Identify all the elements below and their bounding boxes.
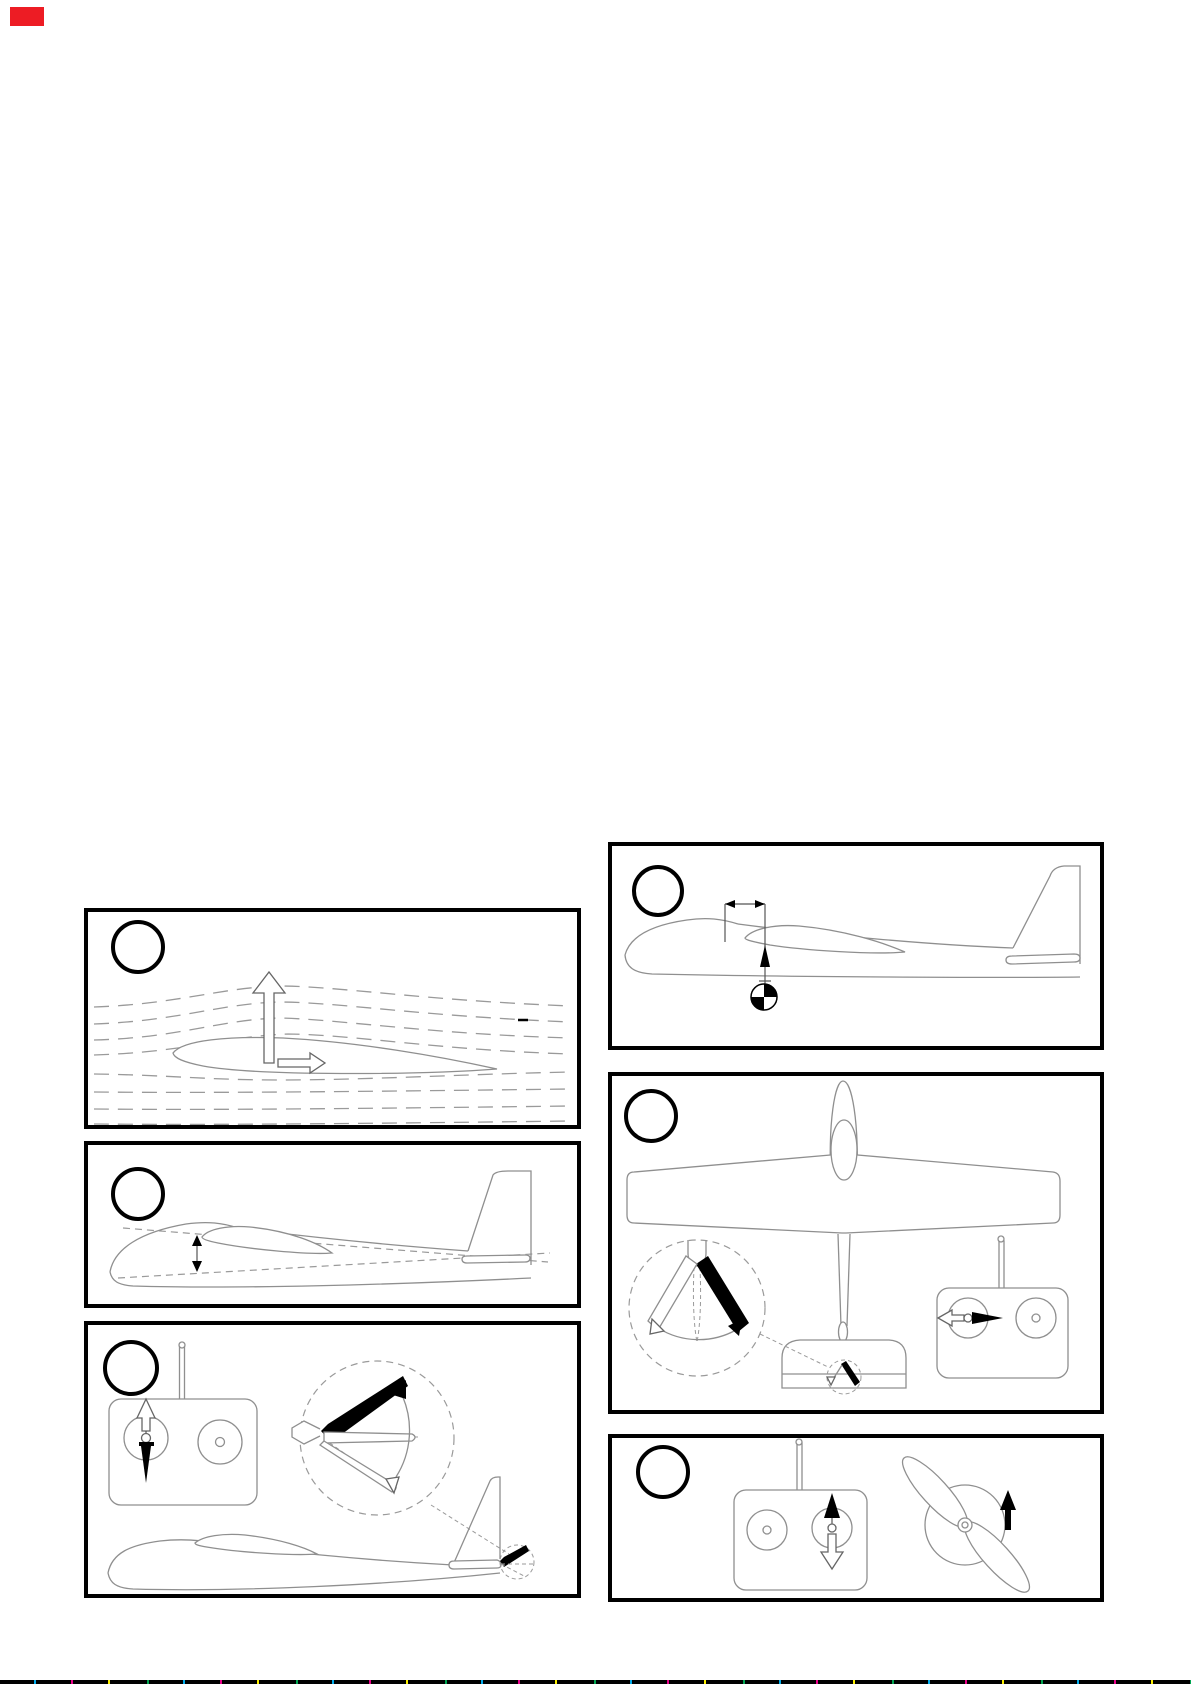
transmitter xyxy=(937,1236,1068,1378)
stick-pivot xyxy=(828,1524,836,1532)
rudder-control-drawing xyxy=(612,1076,1100,1410)
detail-connector xyxy=(431,1505,509,1554)
antenna-tip xyxy=(998,1236,1004,1242)
airfoil-section xyxy=(173,1038,497,1074)
antenna xyxy=(999,1241,1004,1291)
rudder-detail-circle xyxy=(629,1240,765,1376)
glider-side-view xyxy=(110,1171,531,1287)
glider-side-view xyxy=(625,866,1080,977)
transmitter xyxy=(109,1342,257,1505)
cg-symbol xyxy=(751,984,777,1010)
panel-incidence xyxy=(84,1141,581,1308)
rotation-arrow xyxy=(1000,1490,1016,1510)
panel-throttle xyxy=(608,1434,1104,1602)
panel-c-badge-circle xyxy=(105,1342,157,1394)
bottom-print-rule xyxy=(0,1680,1191,1684)
throttle-drawing xyxy=(612,1438,1100,1598)
propeller xyxy=(894,1449,1037,1598)
panel-rudder-control xyxy=(608,1072,1104,1414)
panel-d-badge-circle xyxy=(634,867,682,915)
panel-b-badge-circle xyxy=(113,1169,163,1219)
panel-elevator-control xyxy=(84,1321,581,1598)
elevator-control-drawing xyxy=(88,1325,577,1594)
prop-hub xyxy=(958,1518,972,1532)
antenna-tip xyxy=(796,1439,802,1445)
rudder-left-outline xyxy=(648,1256,697,1330)
panel-e-badge-circle xyxy=(626,1091,676,1141)
transmitter-body xyxy=(734,1490,867,1590)
transmitter-body xyxy=(109,1399,257,1505)
antenna xyxy=(797,1443,802,1492)
transmitter xyxy=(734,1439,867,1590)
manual-page: { "page": { "width_px": 1191, "height_px… xyxy=(0,0,1191,1685)
panel-a-badge-circle xyxy=(113,922,163,972)
stick-pivot xyxy=(142,1434,151,1443)
elevator-neutral-outline xyxy=(324,1432,415,1443)
elevator-detail-circle xyxy=(292,1361,454,1515)
cg-drawing xyxy=(612,846,1100,1046)
antenna-tip xyxy=(179,1342,185,1348)
incidence-arrow xyxy=(192,1235,202,1272)
tailpost xyxy=(292,1421,320,1444)
panel-airflow-lift xyxy=(84,908,581,1129)
panel-f-badge-circle xyxy=(638,1447,688,1497)
cg-pointer xyxy=(759,945,771,984)
red-corner-mark xyxy=(10,7,44,26)
incidence-drawing xyxy=(88,1145,577,1304)
panel-center-of-gravity xyxy=(608,842,1104,1050)
airflow-lift-drawing xyxy=(88,912,577,1125)
antenna xyxy=(180,1347,185,1407)
cockpit xyxy=(831,1120,857,1180)
stick-pivot xyxy=(964,1314,972,1322)
cg-arrow-up xyxy=(760,945,770,967)
reference-lines xyxy=(118,1228,550,1278)
boom-end xyxy=(839,1322,848,1342)
elevator-down-outline xyxy=(320,1441,396,1492)
